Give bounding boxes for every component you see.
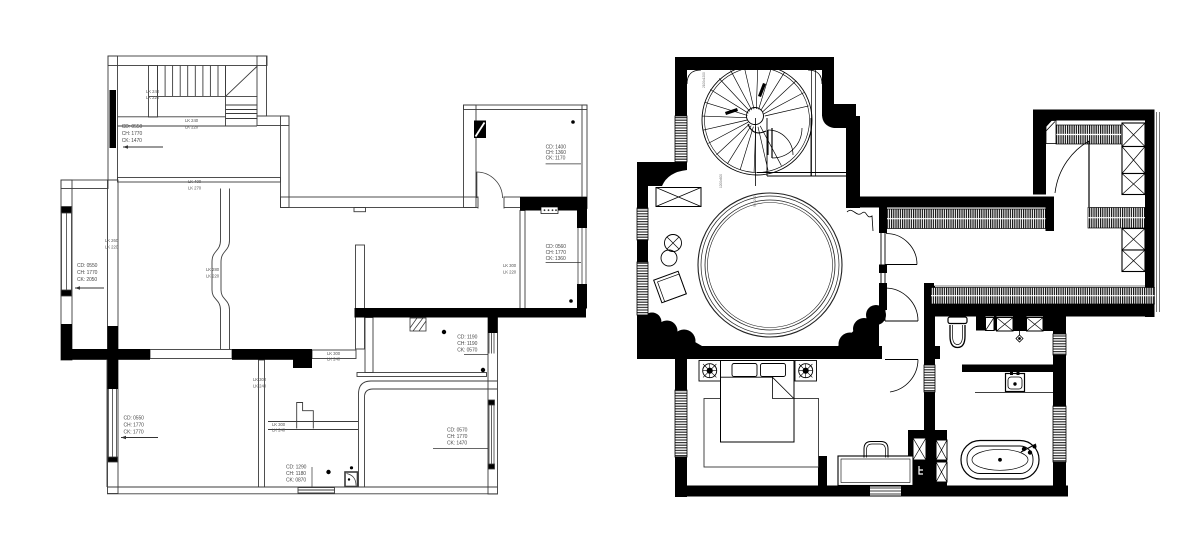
svg-text:LK 300: LK 300	[272, 422, 286, 427]
svg-text:CH: 1770: CH: 1770	[122, 131, 143, 137]
svg-text:LK 240: LK 240	[327, 357, 341, 362]
svg-text:CK: 1170: CK: 1170	[546, 156, 566, 162]
svg-text:LK 220: LK 220	[503, 270, 517, 275]
svg-text:LK 300: LK 300	[327, 351, 341, 356]
svg-text:CK: 1770: CK: 1770	[124, 430, 144, 436]
svg-text:CD: 1190: CD: 1190	[457, 335, 477, 341]
svg-text:CD: 0550: CD: 0550	[77, 263, 98, 269]
svg-text:LK 300: LK 300	[253, 377, 267, 382]
svg-text:LK 220: LK 220	[146, 95, 160, 100]
svg-text:LK 240: LK 240	[272, 428, 286, 433]
svg-text:CK: 0870: CK: 0870	[286, 478, 306, 484]
svg-text:CH: 1770: CH: 1770	[124, 423, 145, 429]
svg-text:CD: 0570: CD: 0570	[447, 428, 468, 434]
svg-text:CH: 1180: CH: 1180	[286, 471, 306, 477]
svg-text:LK 260: LK 260	[105, 238, 119, 243]
svg-text:LK 220: LK 220	[105, 245, 119, 250]
svg-text:LK 240: LK 240	[185, 118, 199, 123]
svg-text:CK: 1360: CK: 1360	[546, 256, 566, 262]
svg-text:LK 240: LK 240	[253, 384, 267, 389]
svg-text:CH: 1770: CH: 1770	[77, 270, 98, 276]
svg-text:CD: 0550: CD: 0550	[122, 124, 143, 130]
svg-text:LK 280: LK 280	[206, 267, 220, 272]
svg-text:LK 220: LK 220	[206, 274, 220, 279]
svg-text:CK: 1470: CK: 1470	[122, 138, 142, 144]
svg-text:2100x1200: 2100x1200	[702, 72, 706, 88]
svg-text:LK 400: LK 400	[188, 179, 202, 184]
svg-text:CK: 1470: CK: 1470	[447, 441, 467, 447]
svg-text:CH: 1190: CH: 1190	[457, 341, 477, 347]
svg-text:CD: 1290: CD: 1290	[286, 465, 307, 471]
svg-text:CK: 0570: CK: 0570	[457, 348, 477, 354]
svg-text:LK 240: LK 240	[146, 89, 160, 94]
svg-text:CH: 1770: CH: 1770	[447, 434, 468, 440]
svg-text:LK 270: LK 270	[188, 186, 202, 191]
svg-text:1200x600: 1200x600	[719, 174, 723, 188]
svg-text:R=1200: R=1200	[753, 196, 757, 207]
svg-text:CK: 2050: CK: 2050	[77, 277, 97, 283]
svg-text:CD: 0550: CD: 0550	[124, 416, 145, 422]
svg-text:LK 300: LK 300	[503, 263, 517, 268]
svg-text:LK 220: LK 220	[185, 125, 199, 130]
